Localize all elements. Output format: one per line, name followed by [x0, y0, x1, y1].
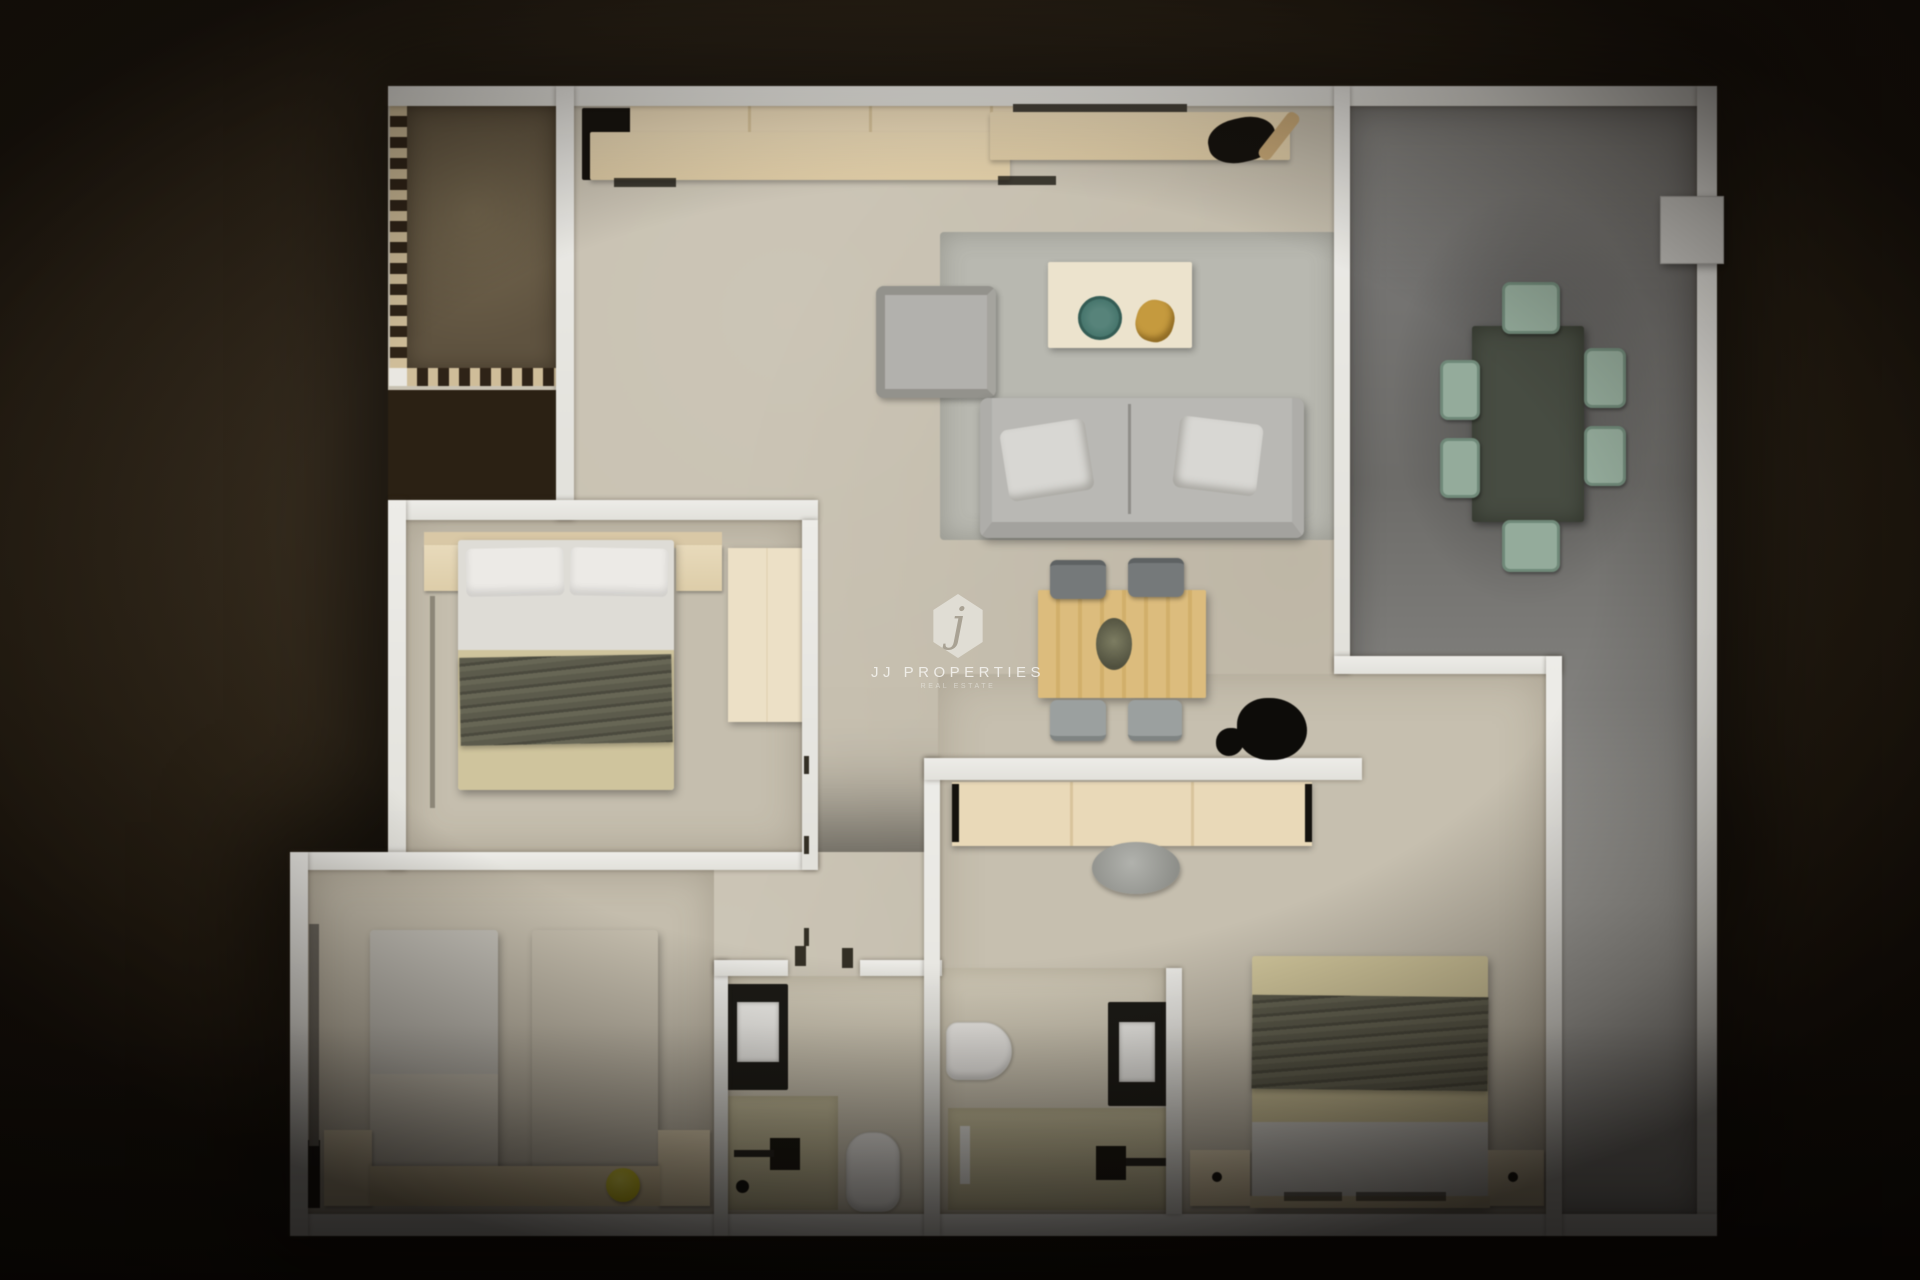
- coffee-table: [1048, 262, 1192, 348]
- doorjamb-bedroom1-a: [804, 756, 809, 774]
- bathroom2-toilet: [946, 1022, 1012, 1080]
- wall-top: [388, 86, 1717, 106]
- bed3-throw: [1252, 995, 1489, 1091]
- terrace-chair-left-2: [1440, 438, 1480, 498]
- dining-chair-bottom-2: [1128, 700, 1182, 741]
- bed3-nightstand-right-knob: [1508, 1172, 1518, 1182]
- counter-leg-shadow-2: [998, 176, 1056, 185]
- door-leaf-bathroom1-b: [842, 948, 853, 968]
- wall-bedroom1-right: [802, 520, 818, 870]
- bathroom2-faucet: [1126, 1158, 1166, 1166]
- wall-bedroom3-right: [1546, 656, 1562, 1236]
- bathroom1-sink: [770, 1138, 800, 1170]
- doorjamb-bedroom1-b: [804, 836, 809, 854]
- terrace-chair-right-1: [1584, 348, 1626, 408]
- terrace-dining-table: [1472, 326, 1584, 522]
- door-leaf-bathroom1-a: [795, 946, 806, 966]
- bed1-throw: [459, 654, 673, 746]
- dining-centerpiece: [1096, 618, 1132, 670]
- wall-left-mid: [388, 500, 406, 870]
- doorjamb-hall: [804, 928, 809, 946]
- dining-chair-bottom-1: [1050, 700, 1106, 741]
- bedroom1-floor-shadow: [430, 596, 435, 808]
- wall-bedrooms-divider: [290, 852, 818, 870]
- wall-bottom: [290, 1214, 1717, 1236]
- bathroom1-faucet: [734, 1150, 774, 1157]
- wall-bathrooms-divider: [1166, 968, 1182, 1214]
- bed1-pillow-right: [570, 547, 669, 597]
- balcony-railing-left: [390, 106, 407, 368]
- watermark: j JJ PROPERTIES REAL ESTATE: [858, 594, 1058, 690]
- bedroom3-console-closet: [952, 782, 1312, 846]
- armchair: [876, 286, 996, 398]
- bathroom2-towel: [960, 1126, 970, 1184]
- wall-bedroom3-top: [924, 758, 1362, 780]
- wall-left-upper: [556, 86, 574, 520]
- yellow-stool: [606, 1168, 640, 1202]
- watermark-logo-hexagon: j: [930, 594, 986, 658]
- floor-plan-render: j JJ PROPERTIES REAL ESTATE: [0, 0, 1920, 1280]
- counter-leg-shadow-1: [614, 178, 676, 187]
- sofa-pillow-right: [1172, 415, 1264, 497]
- bed3-nightstand-left-knob: [1212, 1172, 1222, 1182]
- watermark-tagline: REAL ESTATE: [858, 683, 1058, 690]
- bed2-nightstand-right: [658, 1130, 710, 1206]
- watermark-brand: JJ PROPERTIES: [858, 664, 1058, 681]
- bed1-pillow-left: [466, 547, 565, 597]
- bathroom2-shower-tray: [1119, 1022, 1155, 1082]
- terrace-chair-bottom: [1502, 520, 1560, 572]
- wall-bedroom1-top: [388, 500, 818, 520]
- single-bed-1: [370, 930, 498, 1170]
- sofa-pillow-left: [999, 418, 1095, 503]
- wall-bathroom1-left: [714, 960, 728, 1236]
- dining-chair-top-1: [1050, 560, 1106, 599]
- bedroom1-wardrobe: [728, 548, 806, 722]
- bathroom1-shower-tray: [737, 1002, 779, 1062]
- watermark-logo-initial: j: [951, 601, 965, 647]
- console-end-left: [952, 784, 959, 842]
- bedroom2-wardrobe-track: [309, 924, 319, 1146]
- bedroom3-desk-chair: [1092, 842, 1180, 894]
- bed1-nightstand-right: [676, 545, 722, 591]
- kitchen-counter-left: [590, 132, 1010, 180]
- dining-chair-top-2: [1128, 558, 1184, 597]
- wall-bathroom1-top-a: [714, 960, 788, 976]
- balcony-floor: [406, 106, 556, 370]
- terrace-chair-top: [1502, 282, 1560, 334]
- bed2-nightstand-left: [324, 1130, 372, 1206]
- bedroom2-wardrobe-door: [306, 1140, 320, 1208]
- console-end-right: [1305, 784, 1312, 842]
- plant: [1237, 698, 1307, 760]
- wall-hall-right: [924, 758, 940, 1236]
- decor-teal-plate: [1078, 296, 1122, 340]
- balcony-railing-bottom: [407, 368, 556, 386]
- wall-left-lower: [290, 852, 308, 1236]
- wall-terrace-left: [1334, 86, 1350, 674]
- ac-unit: [1660, 196, 1724, 264]
- entry-threshold: [1013, 104, 1187, 112]
- sofa-seam: [1128, 404, 1131, 514]
- bathroom1-drain: [736, 1180, 749, 1193]
- bed3-floor-shadow-1: [1284, 1192, 1342, 1201]
- background-notch: [388, 390, 558, 502]
- terrace-chair-right-2: [1584, 426, 1626, 486]
- bathroom1-toilet: [846, 1132, 900, 1212]
- wall-terrace-bottom: [1334, 656, 1562, 674]
- single-bed-2: [532, 930, 658, 1170]
- bathroom2-sink: [1096, 1146, 1126, 1180]
- balcony-railing-corner: [389, 368, 407, 386]
- bed3-floor-shadow-2: [1356, 1192, 1446, 1201]
- terrace-chair-left-1: [1440, 360, 1480, 420]
